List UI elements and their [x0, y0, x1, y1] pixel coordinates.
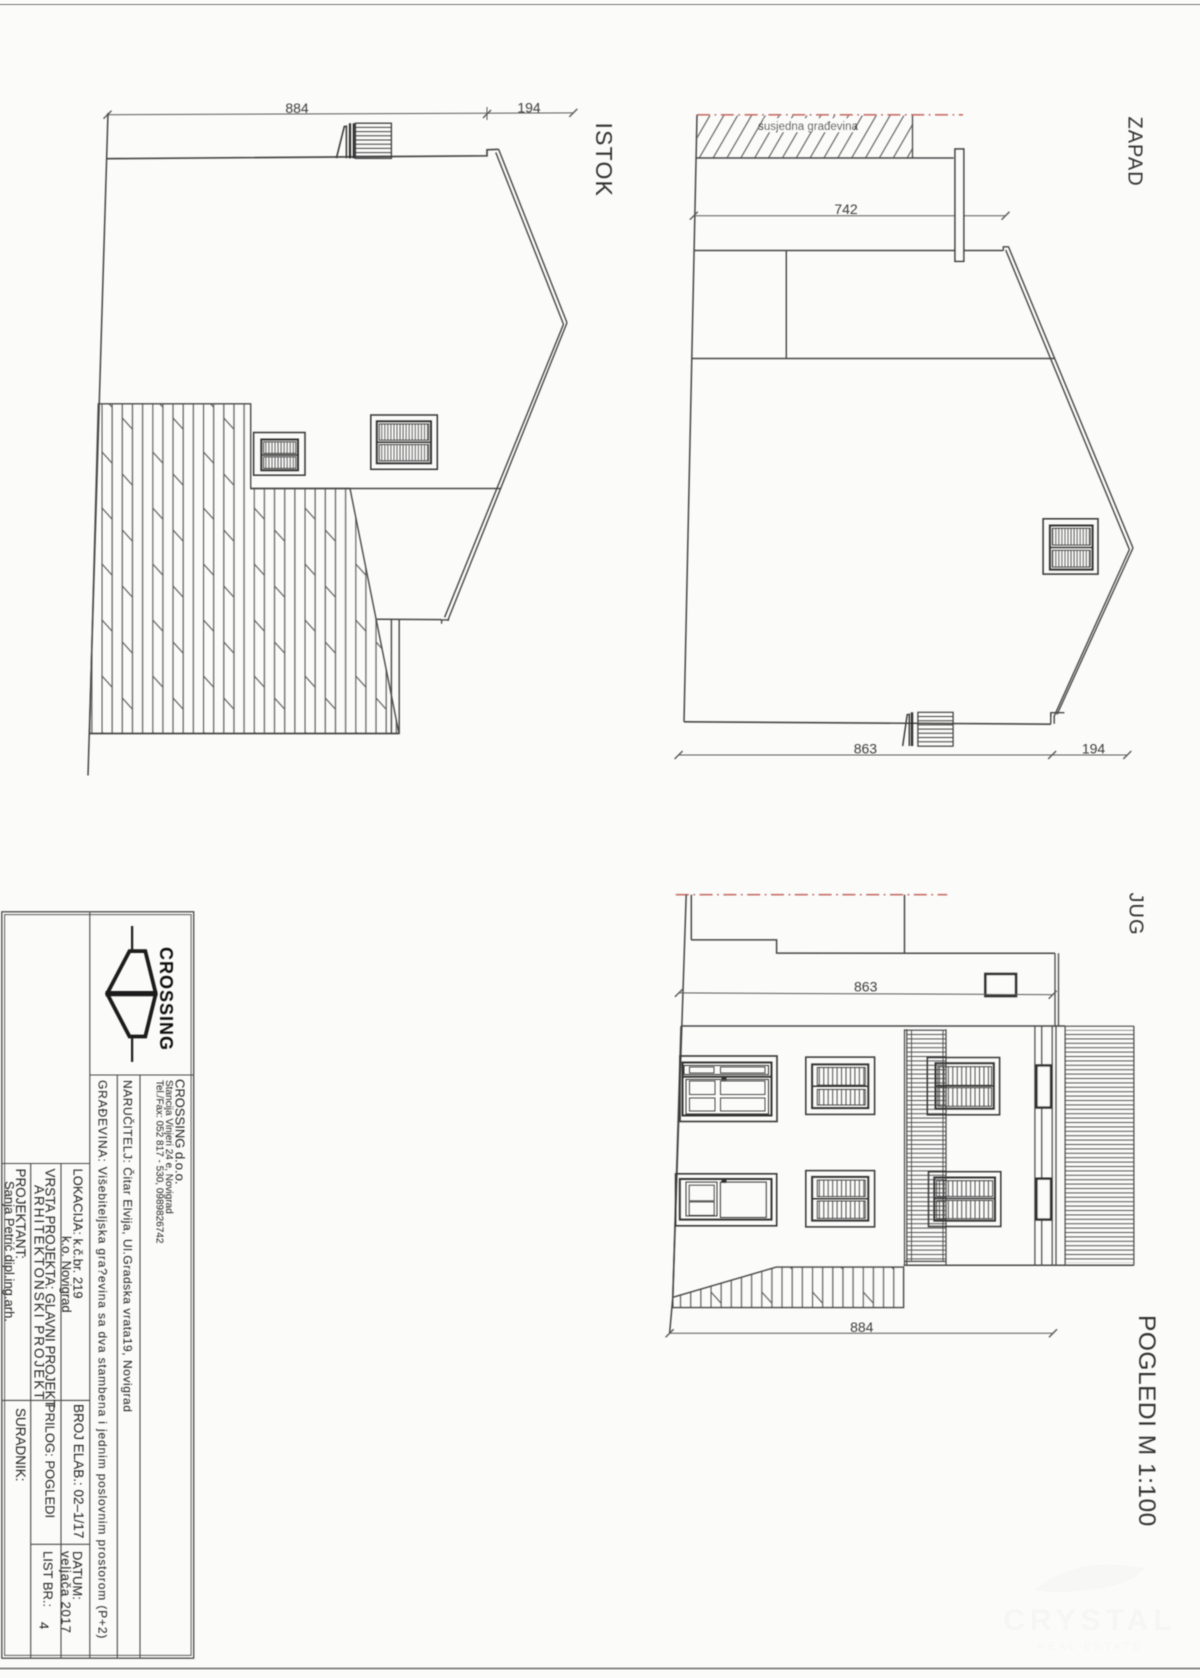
svg-text:742: 742 [834, 201, 858, 217]
svg-text:GRAĐEVINA: Višebiteljska gra: GRAĐEVINA: Višebiteljska gra?evina sa dv… [96, 1080, 110, 1639]
svg-text:REAL ESTATE: REAL ESTATE [1037, 1641, 1143, 1653]
svg-text:PRILOG: POGLEDI: PRILOG: POGLEDI [43, 1404, 58, 1518]
svg-text:CRYSTAL: CRYSTAL [1003, 1604, 1176, 1637]
svg-text:CROSSING: CROSSING [156, 947, 176, 1051]
svg-text:ARHITEKTONSKI PROJEKT: ARHITEKTONSKI PROJEKT [32, 1185, 47, 1402]
svg-text:NARUČITELJ: Čitar Elvija, Ul: NARUČITELJ: Čitar Elvija, Ul.Gradska vra… [121, 1080, 136, 1412]
svg-text:Sanja Petrić dipl.ing.arh.: Sanja Petrić dipl.ing.arh. [2, 1181, 17, 1322]
svg-text:Tel./Fax: 052 817 - 530, 09898: Tel./Fax: 052 817 - 530, 0989826742 [154, 1080, 165, 1244]
svg-text:susjedna građevina: susjedna građevina [758, 121, 858, 133]
svg-text:884: 884 [285, 100, 309, 116]
svg-text:ZAPAD: ZAPAD [1124, 117, 1146, 187]
svg-text:POGLEDI M 1:100: POGLEDI M 1:100 [1133, 1315, 1160, 1527]
svg-text:ISTOK: ISTOK [591, 123, 617, 198]
svg-text:863: 863 [854, 740, 878, 756]
svg-text:SURADNIK:: SURADNIK: [13, 1408, 28, 1482]
svg-text:k.o. Novigrad: k.o. Novigrad [59, 1236, 74, 1313]
svg-text:veljača 2017: veljača 2017 [59, 1551, 74, 1634]
svg-text:884: 884 [850, 1319, 874, 1335]
svg-text:JUG: JUG [1125, 893, 1147, 936]
svg-text:863: 863 [854, 979, 878, 995]
svg-text:LIST BR.:: LIST BR.: [41, 1551, 56, 1607]
svg-text:194: 194 [517, 99, 541, 115]
svg-text:194: 194 [1082, 740, 1106, 756]
svg-text:4: 4 [37, 1622, 52, 1629]
svg-text:BROJ ELAB.: 02–1/17: BROJ ELAB.: 02–1/17 [71, 1404, 86, 1538]
